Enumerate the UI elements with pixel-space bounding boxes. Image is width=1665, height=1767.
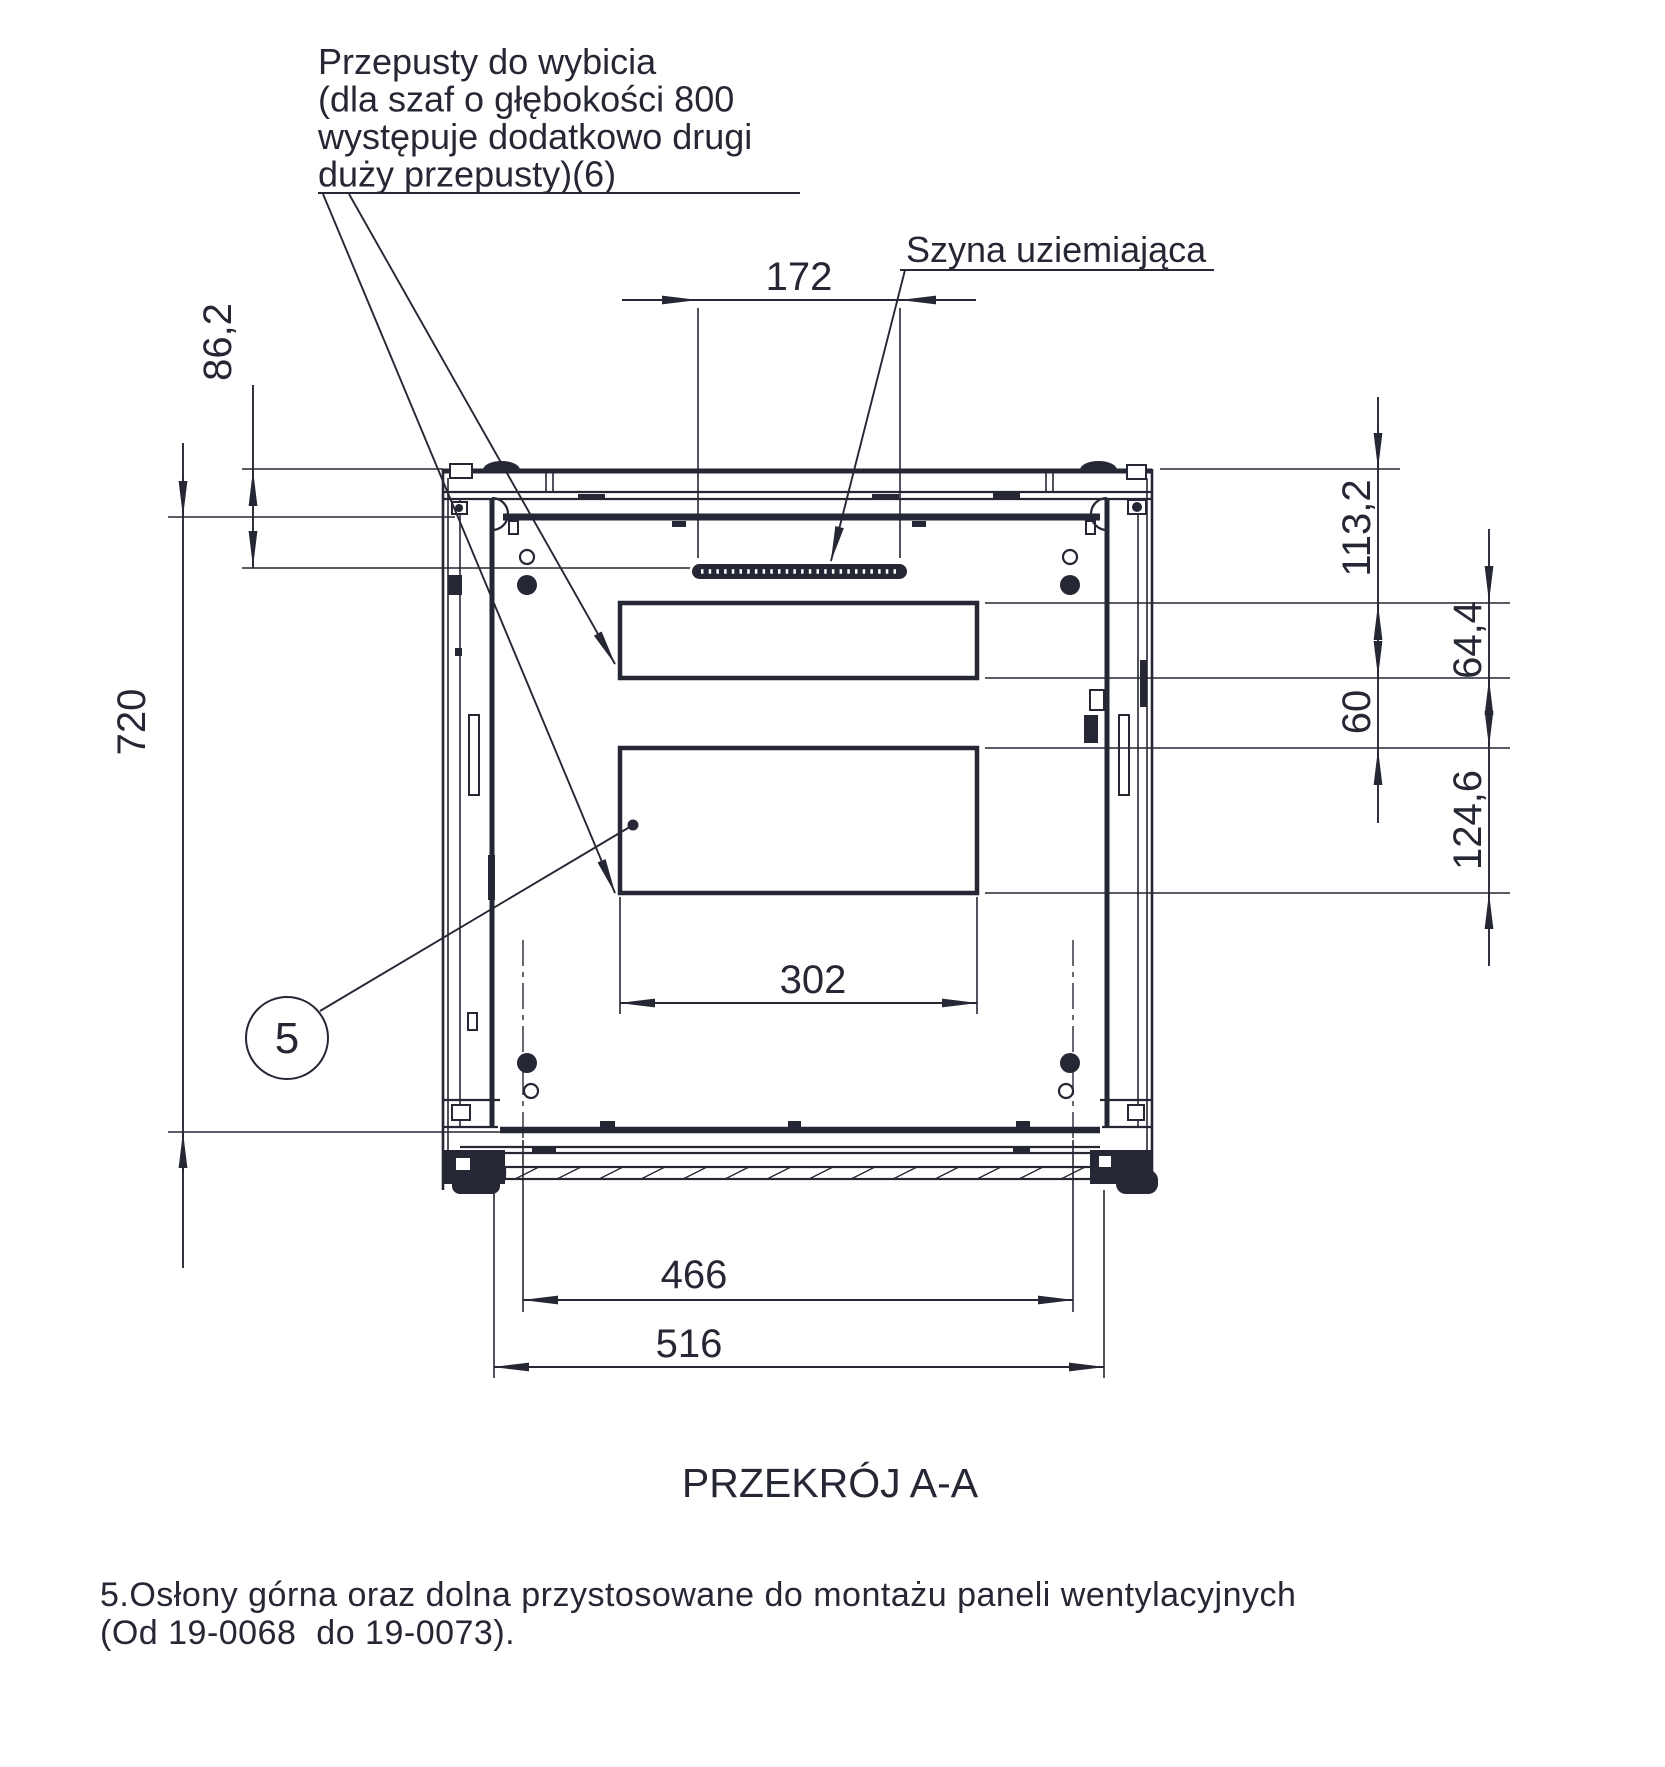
left-foot [452,1176,500,1194]
section-title: PRZEKRÓJ A-A [682,1460,979,1506]
dim-720: 720 [110,689,154,756]
dim-124-6: 124,6 [1446,770,1490,870]
callout-line-1: Przepusty do wybicia [318,41,657,82]
callout-line-3: występuje dodatkowo drugi [317,116,752,157]
drawing-page: 5 Przepusty do wybicia (dla szaf o głębo… [0,0,1665,1767]
dim-516: 516 [656,1322,723,1366]
leader-dot [628,820,639,831]
top-bump-right [1080,461,1117,470]
dim-86-2: 86,2 [196,303,240,381]
dim-466: 466 [661,1253,728,1297]
dim-113-2: 113,2 [1335,479,1379,576]
right-foot [1116,1170,1158,1194]
left-wall-slot [469,715,479,795]
balloon-number: 5 [275,1014,299,1063]
right-wall-slot [1119,715,1129,795]
vent-hatch [515,1167,1085,1179]
grounding-rail-label: Szyna uziemiająca [906,229,1207,270]
balloon-5: 5 [246,997,328,1079]
dim-60: 60 [1335,690,1379,735]
callout-line-2: (dla szaf o głębokości 800 [318,79,734,120]
dim-172: 172 [766,255,833,299]
leader-balloon-5 [320,825,633,1011]
leader-knockout-upper [349,194,615,664]
dim-302: 302 [780,958,847,1002]
dim-64-4: 64,4 [1446,601,1490,679]
note-line-2: (Od 19-0068 do 19-0073). [100,1614,515,1652]
knockout-upper [620,603,977,678]
knockout-lower [620,748,977,893]
note-line-1: 5.Osłony górna oraz dolna przystosowane … [100,1576,1296,1614]
callout-line-4: duży przepusty)(6) [318,154,616,195]
top-cover [443,461,1152,534]
grounding-rail [692,564,907,579]
technical-drawing: 5 Przepusty do wybicia (dla szaf o głębo… [0,0,1665,1767]
cabinet-structure [443,461,1158,1194]
vent-panel-strip [505,1167,1095,1179]
bottom-cover [443,1100,1158,1194]
right-wall [1084,469,1152,1190]
left-wall [443,469,508,1190]
